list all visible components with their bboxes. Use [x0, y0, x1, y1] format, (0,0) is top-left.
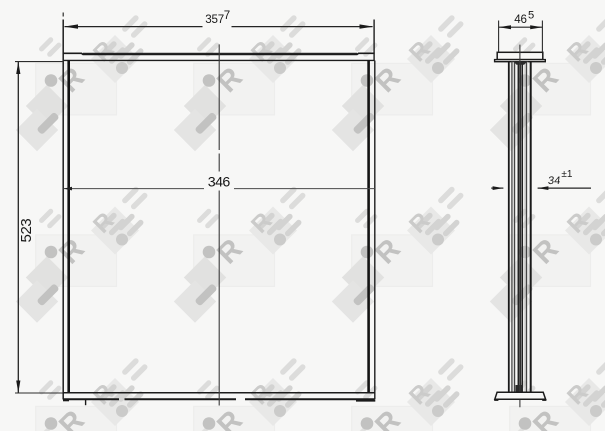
svg-text:7: 7 [224, 10, 230, 22]
svg-text:5: 5 [528, 10, 534, 22]
svg-text:±1: ±1 [561, 169, 572, 180]
svg-text:34: 34 [547, 175, 561, 187]
svg-text:523: 523 [18, 219, 35, 243]
svg-text:46: 46 [514, 13, 526, 26]
svg-text:357: 357 [205, 13, 224, 26]
svg-text:346: 346 [208, 174, 231, 190]
